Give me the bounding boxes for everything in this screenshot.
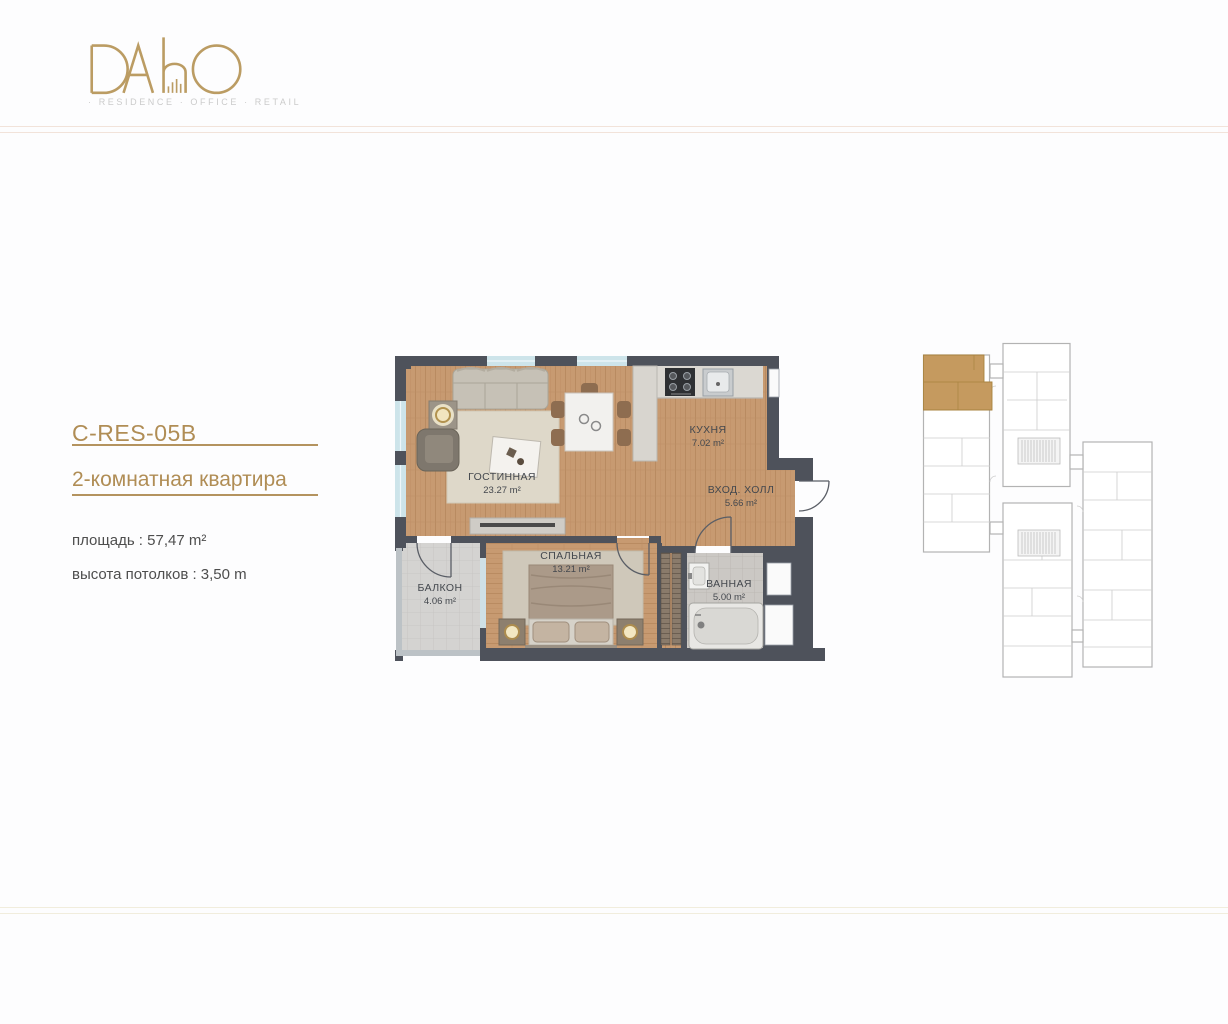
kitchen-partition (633, 366, 657, 461)
bathtub-icon (689, 603, 763, 649)
label-living-area: 23.27 m² (483, 485, 521, 496)
unit-area-label: площадь : 57,47 m² (72, 532, 206, 549)
unit-ceiling-label: высота потолков : 3,50 m (72, 566, 247, 583)
logo-tagline: · RESIDENCE · OFFICE · RETAIL (88, 97, 301, 107)
bed (525, 565, 617, 650)
label-living-name: ГОСТИННАЯ (468, 471, 536, 483)
label-bedroom-area: 13.21 m² (552, 564, 590, 575)
side-table-lamp (429, 401, 457, 429)
keyplan-stair-cores (1018, 438, 1060, 556)
entrance-door-arc (799, 481, 829, 511)
footer-divider (0, 907, 1228, 914)
unit-code: C-RES-05B (72, 420, 197, 447)
balcony-glazing-bottom (396, 650, 480, 656)
unit-title-underline (72, 494, 318, 496)
floor-plan: ГОСТИННАЯ 23.27 m² КУХНЯ 7.02 m² ВХОД. Х… (395, 353, 832, 671)
sofa (453, 368, 548, 409)
header-divider (0, 126, 1228, 133)
label-balcony-area: 4.06 m² (424, 596, 456, 607)
tv-console (470, 518, 565, 534)
kitchen-sink-icon (703, 369, 733, 396)
armchair (417, 429, 459, 471)
nightstand-left (499, 619, 525, 645)
label-bath-name: ВАННАЯ (706, 578, 752, 590)
label-bedroom-name: СПАЛЬНАЯ (540, 550, 602, 562)
stove-icon (665, 368, 695, 396)
label-balcony-name: БАЛКОН (418, 582, 463, 594)
nightstand-right (617, 619, 643, 645)
daho-logo: DAhO (86, 34, 246, 106)
label-bath-area: 5.00 m² (713, 592, 745, 603)
highlighted-unit (924, 355, 993, 410)
daho-logo-building-bars-icon (168, 79, 180, 93)
label-hall-name: ВХОД. ХОЛЛ (708, 484, 775, 496)
unit-type-title: 2-комнатная квартира (72, 468, 287, 492)
unit-code-underline (72, 444, 318, 446)
label-kitchen-name: КУХНЯ (689, 424, 726, 436)
label-kitchen-area: 7.02 m² (692, 438, 724, 449)
balcony-glazing-left (396, 548, 402, 650)
label-hall-area: 5.66 m² (725, 498, 757, 509)
building-key-plan (922, 342, 1168, 702)
bedroom-balcony-glass (480, 558, 486, 628)
daho-logo-letters (92, 37, 241, 93)
